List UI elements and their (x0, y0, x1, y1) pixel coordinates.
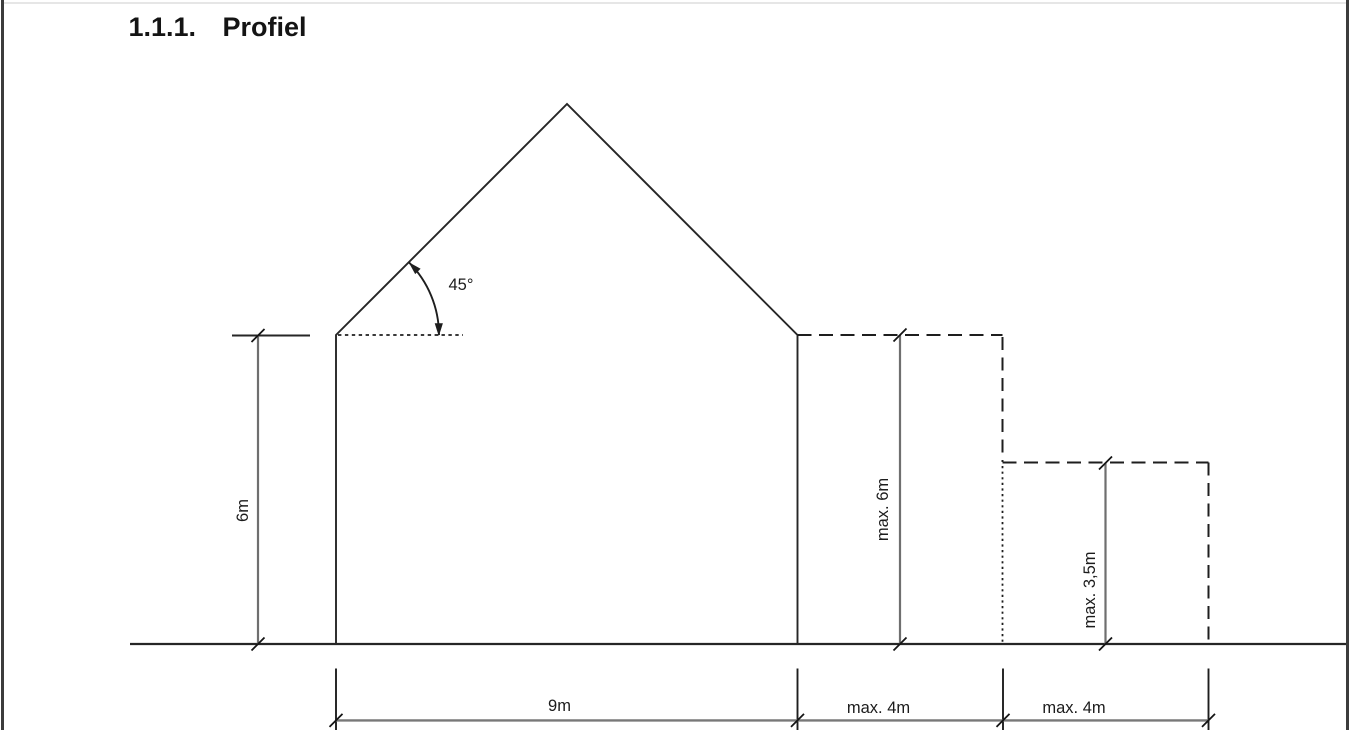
svg-text:Profiel: Profiel (223, 12, 307, 42)
svg-text:max. 4m: max. 4m (847, 699, 910, 717)
svg-text:45°: 45° (449, 276, 474, 294)
svg-text:6m: 6m (234, 499, 252, 522)
svg-text:9m: 9m (548, 697, 571, 715)
svg-text:max. 4m: max. 4m (1042, 699, 1105, 717)
svg-text:max. 3,5m: max. 3,5m (1081, 551, 1099, 628)
svg-text:1.1.1.: 1.1.1. (129, 12, 197, 42)
svg-text:max. 6m: max. 6m (874, 478, 892, 541)
